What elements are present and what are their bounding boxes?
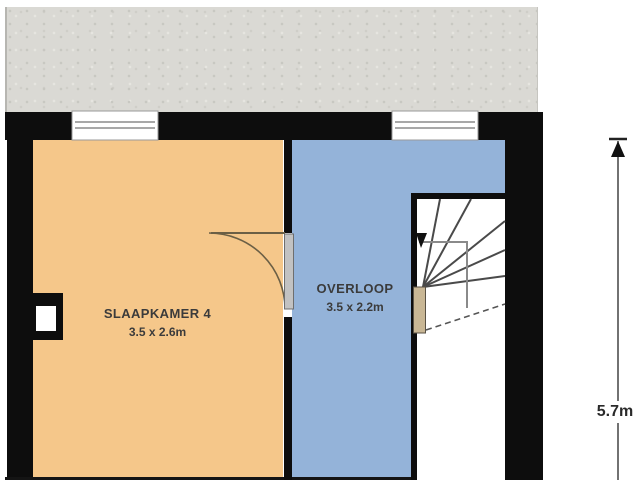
window-icon [392, 111, 478, 140]
window-icon [72, 111, 158, 140]
floorplan-drawing [0, 0, 640, 480]
room-name: SLAAPKAMER 4 [60, 306, 255, 321]
room-name: OVERLOOP [280, 281, 430, 296]
left-wall [7, 112, 33, 480]
room-size: 3.5 x 2.2m [280, 300, 430, 314]
room-label-slaapkamer4: SLAAPKAMER 4 3.5 x 2.6m [60, 306, 255, 339]
dimension-arrow-icon [609, 139, 627, 480]
floorplan-canvas: SLAAPKAMER 4 3.5 x 2.6m OVERLOOP 3.5 x 2… [0, 0, 640, 480]
right-wall [505, 112, 543, 480]
stairs-icon [411, 193, 505, 480]
chimney-icon [30, 293, 63, 340]
stairwell [417, 198, 505, 480]
room-size: 3.5 x 2.6m [60, 325, 255, 339]
dimension-label: 5.7m [591, 401, 639, 423]
room-label-overloop: OVERLOOP 3.5 x 2.2m [280, 281, 430, 314]
